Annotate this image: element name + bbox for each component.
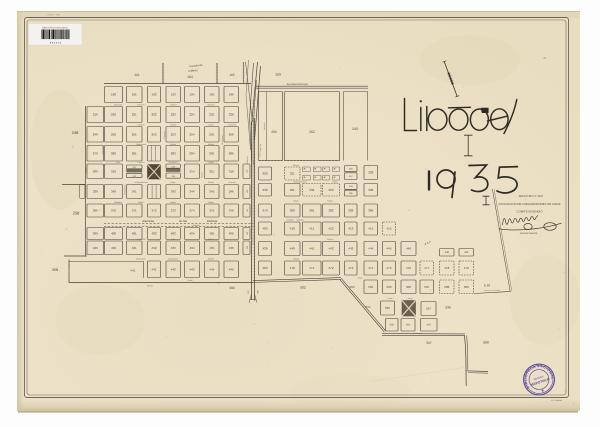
svg-text:Colo C: Colo C <box>208 238 215 241</box>
svg-text:320: 320 <box>262 172 267 176</box>
svg-text:436: 436 <box>229 246 234 250</box>
svg-text:414: 414 <box>368 227 373 231</box>
svg-text:5 10: 5 10 <box>484 284 490 288</box>
svg-text:314: 314 <box>189 169 194 173</box>
svg-text:479: 479 <box>464 266 469 270</box>
svg-text:Rosas: Rosas <box>170 143 176 146</box>
svg-text:222: 222 <box>151 113 156 117</box>
svg-text:192: 192 <box>151 93 156 97</box>
svg-text:444: 444 <box>368 247 373 251</box>
svg-text:221: 221 <box>132 113 137 117</box>
svg-text:Matadero: Matadero <box>102 145 105 154</box>
svg-text:380: 380 <box>290 209 295 213</box>
svg-text:475: 475 <box>386 266 391 270</box>
svg-text:372: 372 <box>151 209 156 213</box>
svg-text:404: 404 <box>189 232 194 236</box>
svg-text:Edwards: Edwards <box>228 124 236 127</box>
svg-text:340: 340 <box>111 190 116 194</box>
svg-text:Brasil: Brasil <box>187 279 193 282</box>
svg-text:429: 429 <box>93 246 98 250</box>
svg-text:315: 315 <box>209 169 214 173</box>
svg-text:165: 165 <box>229 73 235 77</box>
svg-text:458 .: 458 . <box>52 268 60 272</box>
svg-text:384: 384 <box>368 209 373 213</box>
svg-text:371: 371 <box>132 209 137 213</box>
svg-text:502: 502 <box>300 286 306 290</box>
svg-text:Estación: Estación <box>246 156 249 164</box>
svg-text:Independencia: Independencia <box>134 181 148 184</box>
svg-text:444: 444 <box>209 267 214 271</box>
svg-text:Indep.: Indep. <box>332 180 338 183</box>
svg-text:433: 433 <box>171 246 176 250</box>
svg-text:286: 286 <box>229 151 234 155</box>
svg-text:409: 409 <box>262 227 267 231</box>
svg-text:343: 343 <box>171 190 176 194</box>
svg-text:446: 446 <box>406 247 411 251</box>
svg-text:379: 379 <box>262 209 267 213</box>
svg-text:Oriente: Oriente <box>147 285 153 288</box>
svg-text:REGISTRO N° 3257: REGISTRO N° 3257 <box>519 195 544 198</box>
svg-text:Santa: Santa <box>388 297 393 300</box>
svg-text:402: 402 <box>151 232 156 236</box>
svg-text:471: 471 <box>309 266 314 270</box>
svg-text:470: 470 <box>290 266 295 270</box>
svg-text:255: 255 <box>209 132 214 136</box>
svg-text:169: 169 <box>275 73 281 77</box>
svg-text:600: 600 <box>483 341 489 345</box>
svg-text:328: 328 <box>368 171 373 175</box>
svg-text:441: 441 <box>151 267 156 271</box>
svg-text:597: 597 <box>426 341 432 345</box>
svg-text:Espera: Espera <box>208 258 215 261</box>
svg-text:Achibueno: Achibueno <box>221 134 224 144</box>
svg-text:345: 345 <box>209 190 214 194</box>
svg-text:Maipú: Maipú <box>208 201 213 204</box>
svg-text:258: 258 <box>73 211 80 216</box>
svg-text:432: 432 <box>151 246 156 250</box>
svg-text:196: 196 <box>229 93 234 97</box>
svg-text:443: 443 <box>189 267 194 271</box>
svg-text:400: 400 <box>111 232 116 236</box>
svg-text:· 1 5 3 — 4 8 ·: · 1 5 3 — 4 8 · <box>46 13 61 16</box>
svg-text:370: 370 <box>111 209 116 213</box>
svg-text:399: 399 <box>93 232 98 236</box>
svg-text:285: 285 <box>209 151 214 155</box>
svg-text:310: 310 <box>111 169 116 173</box>
svg-text:Morande: Morande <box>114 103 123 106</box>
svg-text:Chacabuco: Chacabuco <box>124 184 127 195</box>
svg-text:Palma: Palma <box>327 238 334 241</box>
svg-text:381: 381 <box>309 209 314 213</box>
svg-text:413: 413 <box>348 227 353 231</box>
svg-text:405: 405 <box>209 232 214 236</box>
svg-text:Avenida Municipal: Avenida Municipal <box>286 83 307 86</box>
svg-text:537: 537 <box>426 307 431 311</box>
svg-text:442: 442 <box>328 247 333 251</box>
svg-text:374: 374 <box>189 209 194 213</box>
svg-text:434: 434 <box>189 246 194 250</box>
svg-text:249: 249 <box>93 132 98 136</box>
svg-text:341: 341 <box>132 190 137 194</box>
svg-text:331: 331 <box>290 188 295 192</box>
svg-text:Ancoa: Ancoa <box>201 171 204 178</box>
svg-text:441: 441 <box>130 269 135 273</box>
svg-text:538: 538 <box>445 306 451 310</box>
svg-text:406: 406 <box>229 232 234 236</box>
svg-text:F.C. Long. Sur: F.C. Long. Sur <box>259 143 262 156</box>
svg-text:443: 443 <box>348 247 353 251</box>
svg-text:Esperanza: Esperanza <box>136 143 146 146</box>
svg-text:441: 441 <box>309 247 314 251</box>
svg-text:161: 161 <box>134 73 140 77</box>
svg-text:505: 505 <box>386 285 391 289</box>
svg-text:ADMINISTRADOR: ADMINISTRADOR <box>520 232 538 235</box>
svg-text:376: 376 <box>229 209 234 213</box>
svg-text:Maipú: Maipú <box>327 200 332 203</box>
svg-text:494: 494 <box>229 286 235 290</box>
svg-text:Lautaro: Lautaro <box>138 161 146 164</box>
svg-text:Lautar: Lautar <box>208 161 214 164</box>
svg-text:445: 445 <box>386 247 391 251</box>
svg-text:223: 223 <box>171 113 176 117</box>
svg-text:316: 316 <box>229 169 234 173</box>
svg-text:de las: de las <box>179 219 188 223</box>
svg-text:321: 321 <box>290 172 295 176</box>
svg-text:Indep.: Indep. <box>170 181 176 184</box>
svg-text:Villalobos: Villalobos <box>114 201 123 204</box>
svg-text:Cancha: Cancha <box>163 131 166 139</box>
svg-text:448: 448 <box>445 251 450 254</box>
svg-text:Delicias: Delicias <box>207 219 218 223</box>
svg-text:220: 220 <box>111 113 116 117</box>
svg-text:509: 509 <box>464 285 469 289</box>
svg-text:252: 252 <box>151 132 156 136</box>
svg-text:225: 225 <box>209 113 214 117</box>
svg-text:330: 330 <box>262 188 267 192</box>
svg-text:442: 442 <box>171 267 176 271</box>
svg-text:Bannen: Bannen <box>208 103 215 106</box>
svg-text:Varas: Varas <box>357 277 362 280</box>
svg-text:431: 431 <box>132 246 137 250</box>
svg-text:259: 259 <box>271 130 277 134</box>
svg-text:Alameda: Alameda <box>142 219 154 223</box>
svg-text:262: 262 <box>309 130 315 134</box>
svg-text:Bannen: Bannen <box>138 103 145 106</box>
svg-text:Yumbel: Yumbel <box>170 103 177 106</box>
svg-text:280: 280 <box>111 151 116 155</box>
svg-text:469: 469 <box>262 266 267 270</box>
svg-text:253: 253 <box>171 132 176 136</box>
svg-text:256: 256 <box>229 132 234 136</box>
svg-text:279: 279 <box>93 151 98 155</box>
svg-text:194: 194 <box>189 93 194 97</box>
svg-text:476: 476 <box>406 266 411 270</box>
svg-text:251: 251 <box>132 132 137 136</box>
svg-text:Comercio: Comercio <box>169 161 178 164</box>
svg-text:375: 375 <box>209 209 214 213</box>
svg-text:333: 333 <box>328 188 333 192</box>
svg-text:248: 248 <box>72 130 79 135</box>
svg-text:Yerbas: Yerbas <box>170 124 176 127</box>
svg-text:250: 250 <box>111 132 116 136</box>
svg-text:439: 439 <box>262 247 267 251</box>
svg-text:410: 410 <box>290 227 295 231</box>
svg-text:346: 346 <box>229 190 234 194</box>
svg-text:473: 473 <box>348 266 353 270</box>
svg-text:508: 508 <box>444 285 449 289</box>
svg-text:191: 191 <box>132 93 137 97</box>
svg-text:Maipú: Maipú <box>138 201 143 204</box>
svg-text:449: 449 <box>464 251 469 254</box>
svg-text:339: 339 <box>93 190 98 194</box>
svg-text:193: 193 <box>171 93 176 97</box>
svg-text:477: 477 <box>424 266 429 270</box>
svg-text:Rengo: Rengo <box>293 164 300 167</box>
svg-text:332: 332 <box>309 188 314 192</box>
svg-text:Rosas: Rosas <box>293 257 299 260</box>
svg-text:283: 283 <box>171 151 176 155</box>
svg-text:224: 224 <box>189 113 194 117</box>
svg-text:401: 401 <box>132 232 137 236</box>
svg-text:472: 472 <box>328 266 333 270</box>
svg-text:Espera: Espera <box>208 143 215 146</box>
svg-text:Delicias: Delicias <box>296 219 303 222</box>
svg-text:Lit. Leblanc: Lit. Leblanc <box>551 399 563 402</box>
svg-text:Carrer: Carrer <box>208 124 214 127</box>
svg-text:507: 507 <box>424 285 429 289</box>
svg-text:Indepe: Indepe <box>208 181 215 184</box>
svg-text:430: 430 <box>111 246 116 250</box>
svg-text:565: 565 <box>390 324 395 327</box>
svg-text:ASOCIACION DE ASEGURADORES DE: ASOCIACION DE ASEGURADORES DE CHILE <box>498 202 560 206</box>
svg-text:164: 164 <box>187 75 193 79</box>
svg-text:Maipú: Maipú <box>170 201 175 204</box>
svg-text:412: 412 <box>328 227 333 231</box>
svg-text:Colo Colo: Colo Colo <box>137 238 147 241</box>
svg-text:243: 243 <box>352 127 358 131</box>
svg-text:403: 403 <box>171 232 176 236</box>
svg-text:535: 535 <box>385 306 390 310</box>
svg-text:Serrano: Serrano <box>228 181 236 184</box>
svg-text:BIBLIOTECA NACIONAL: BIBLIOTECA NACIONAL <box>42 26 69 29</box>
svg-text:A. Dieciocho: A. Dieciocho <box>413 332 423 335</box>
svg-text:440: 440 <box>290 247 295 251</box>
svg-text:504: 504 <box>368 285 373 289</box>
svg-text:435: 435 <box>209 246 214 250</box>
svg-text:Yerbas B.: Yerbas B. <box>263 121 266 130</box>
svg-text:383: 383 <box>348 209 353 213</box>
svg-text:Independencia: Independencia <box>293 180 307 183</box>
svg-text:382: 382 <box>328 209 333 213</box>
svg-text:415: 415 <box>386 227 391 231</box>
svg-text:445: 445 <box>229 267 234 271</box>
svg-text:Esperanza: Esperanza <box>136 258 146 261</box>
svg-text:Camino a la Estación: Camino a la Estación <box>484 289 500 292</box>
svg-text:Eyzaguirre: Eyzaguirre <box>168 258 178 261</box>
svg-text:190: 190 <box>111 93 116 97</box>
svg-text:226: 226 <box>229 113 234 117</box>
svg-text:344: 344 <box>189 190 194 194</box>
svg-text:369: 369 <box>93 209 98 213</box>
svg-text:336: 336 <box>368 188 373 192</box>
svg-text:281: 281 <box>132 151 137 155</box>
svg-text:567: 567 <box>427 324 432 327</box>
svg-text:Maipú: Maipú <box>293 200 298 203</box>
svg-text:Bulnes: Bulnes <box>85 167 88 173</box>
svg-text:219: 219 <box>93 113 98 117</box>
svg-text:Cruz: Cruz <box>116 161 120 164</box>
svg-text:478: 478 <box>444 266 449 270</box>
svg-text:411: 411 <box>309 227 314 231</box>
svg-text:254: 254 <box>189 132 194 136</box>
svg-text:474: 474 <box>368 266 373 270</box>
svg-text:284: 284 <box>189 151 194 155</box>
svg-text:503: 503 <box>349 285 354 289</box>
svg-text:Maria: Maria <box>408 297 413 300</box>
svg-text:373: 373 <box>171 209 176 213</box>
svg-text:COMITE INCENDIO: COMITE INCENDIO <box>516 210 543 214</box>
svg-text:309: 309 <box>93 169 98 173</box>
svg-text:566: 566 <box>406 324 411 327</box>
svg-text:506: 506 <box>406 285 411 289</box>
svg-text:Carrera: Carrera <box>138 124 146 127</box>
svg-text:Delicias: Delicias <box>286 219 293 222</box>
svg-text:8 8 3 9 5 3: 8 8 3 9 5 3 <box>50 41 62 44</box>
svg-text:195: 195 <box>209 93 214 97</box>
